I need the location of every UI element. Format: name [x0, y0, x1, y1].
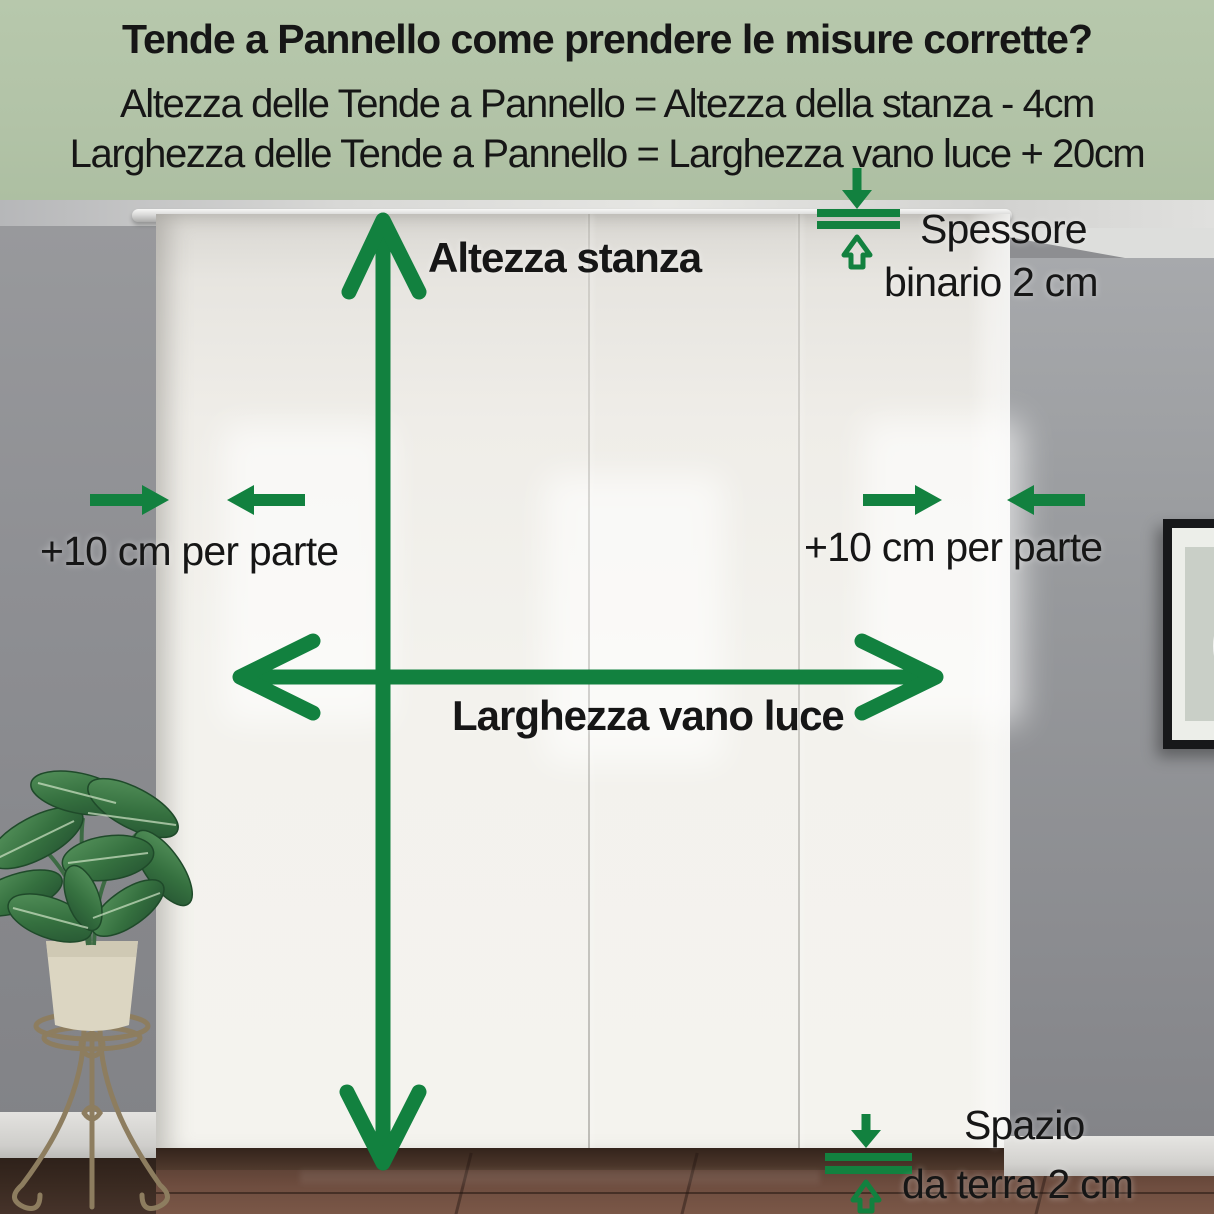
- floor-reflection: [300, 1170, 820, 1184]
- panel-edge-highlight: [968, 214, 1010, 1158]
- panel-seam: [798, 214, 800, 1158]
- track-thickness-label-line2: binario 2 cm: [884, 259, 1098, 306]
- floor-gap-label-line2: da terra 2 cm: [902, 1161, 1133, 1208]
- header-banner: Tende a Pannello come prendere le misure…: [0, 0, 1214, 200]
- measurement-infographic: Tende a Pannello come prendere le misure…: [0, 0, 1214, 1214]
- plant-stand: [14, 1013, 167, 1209]
- opening-width-label: Larghezza vano luce: [452, 692, 844, 740]
- plant-leaves: [0, 763, 203, 951]
- room-height-label: Altezza stanza: [428, 234, 701, 282]
- height-formula: Altezza delle Tende a Pannello = Altezza…: [0, 82, 1214, 127]
- panel-curtains: [156, 214, 1010, 1158]
- left-margin-label: +10 cm per parte: [40, 528, 338, 575]
- potted-plant: [0, 733, 203, 1214]
- picture-frame: [1163, 519, 1214, 749]
- track-thickness-label-line1: Spessore: [920, 206, 1087, 253]
- right-margin-label: +10 cm per parte: [804, 524, 1102, 571]
- page-title: Tende a Pannello come prendere le misure…: [0, 16, 1214, 63]
- floor-shadow: [156, 1148, 1010, 1170]
- panel-seam: [588, 214, 590, 1158]
- width-formula: Larghezza delle Tende a Pannello = Largh…: [0, 132, 1214, 177]
- picture-art: [1185, 547, 1214, 721]
- floor-gap-label-line1: Spazio: [964, 1102, 1085, 1149]
